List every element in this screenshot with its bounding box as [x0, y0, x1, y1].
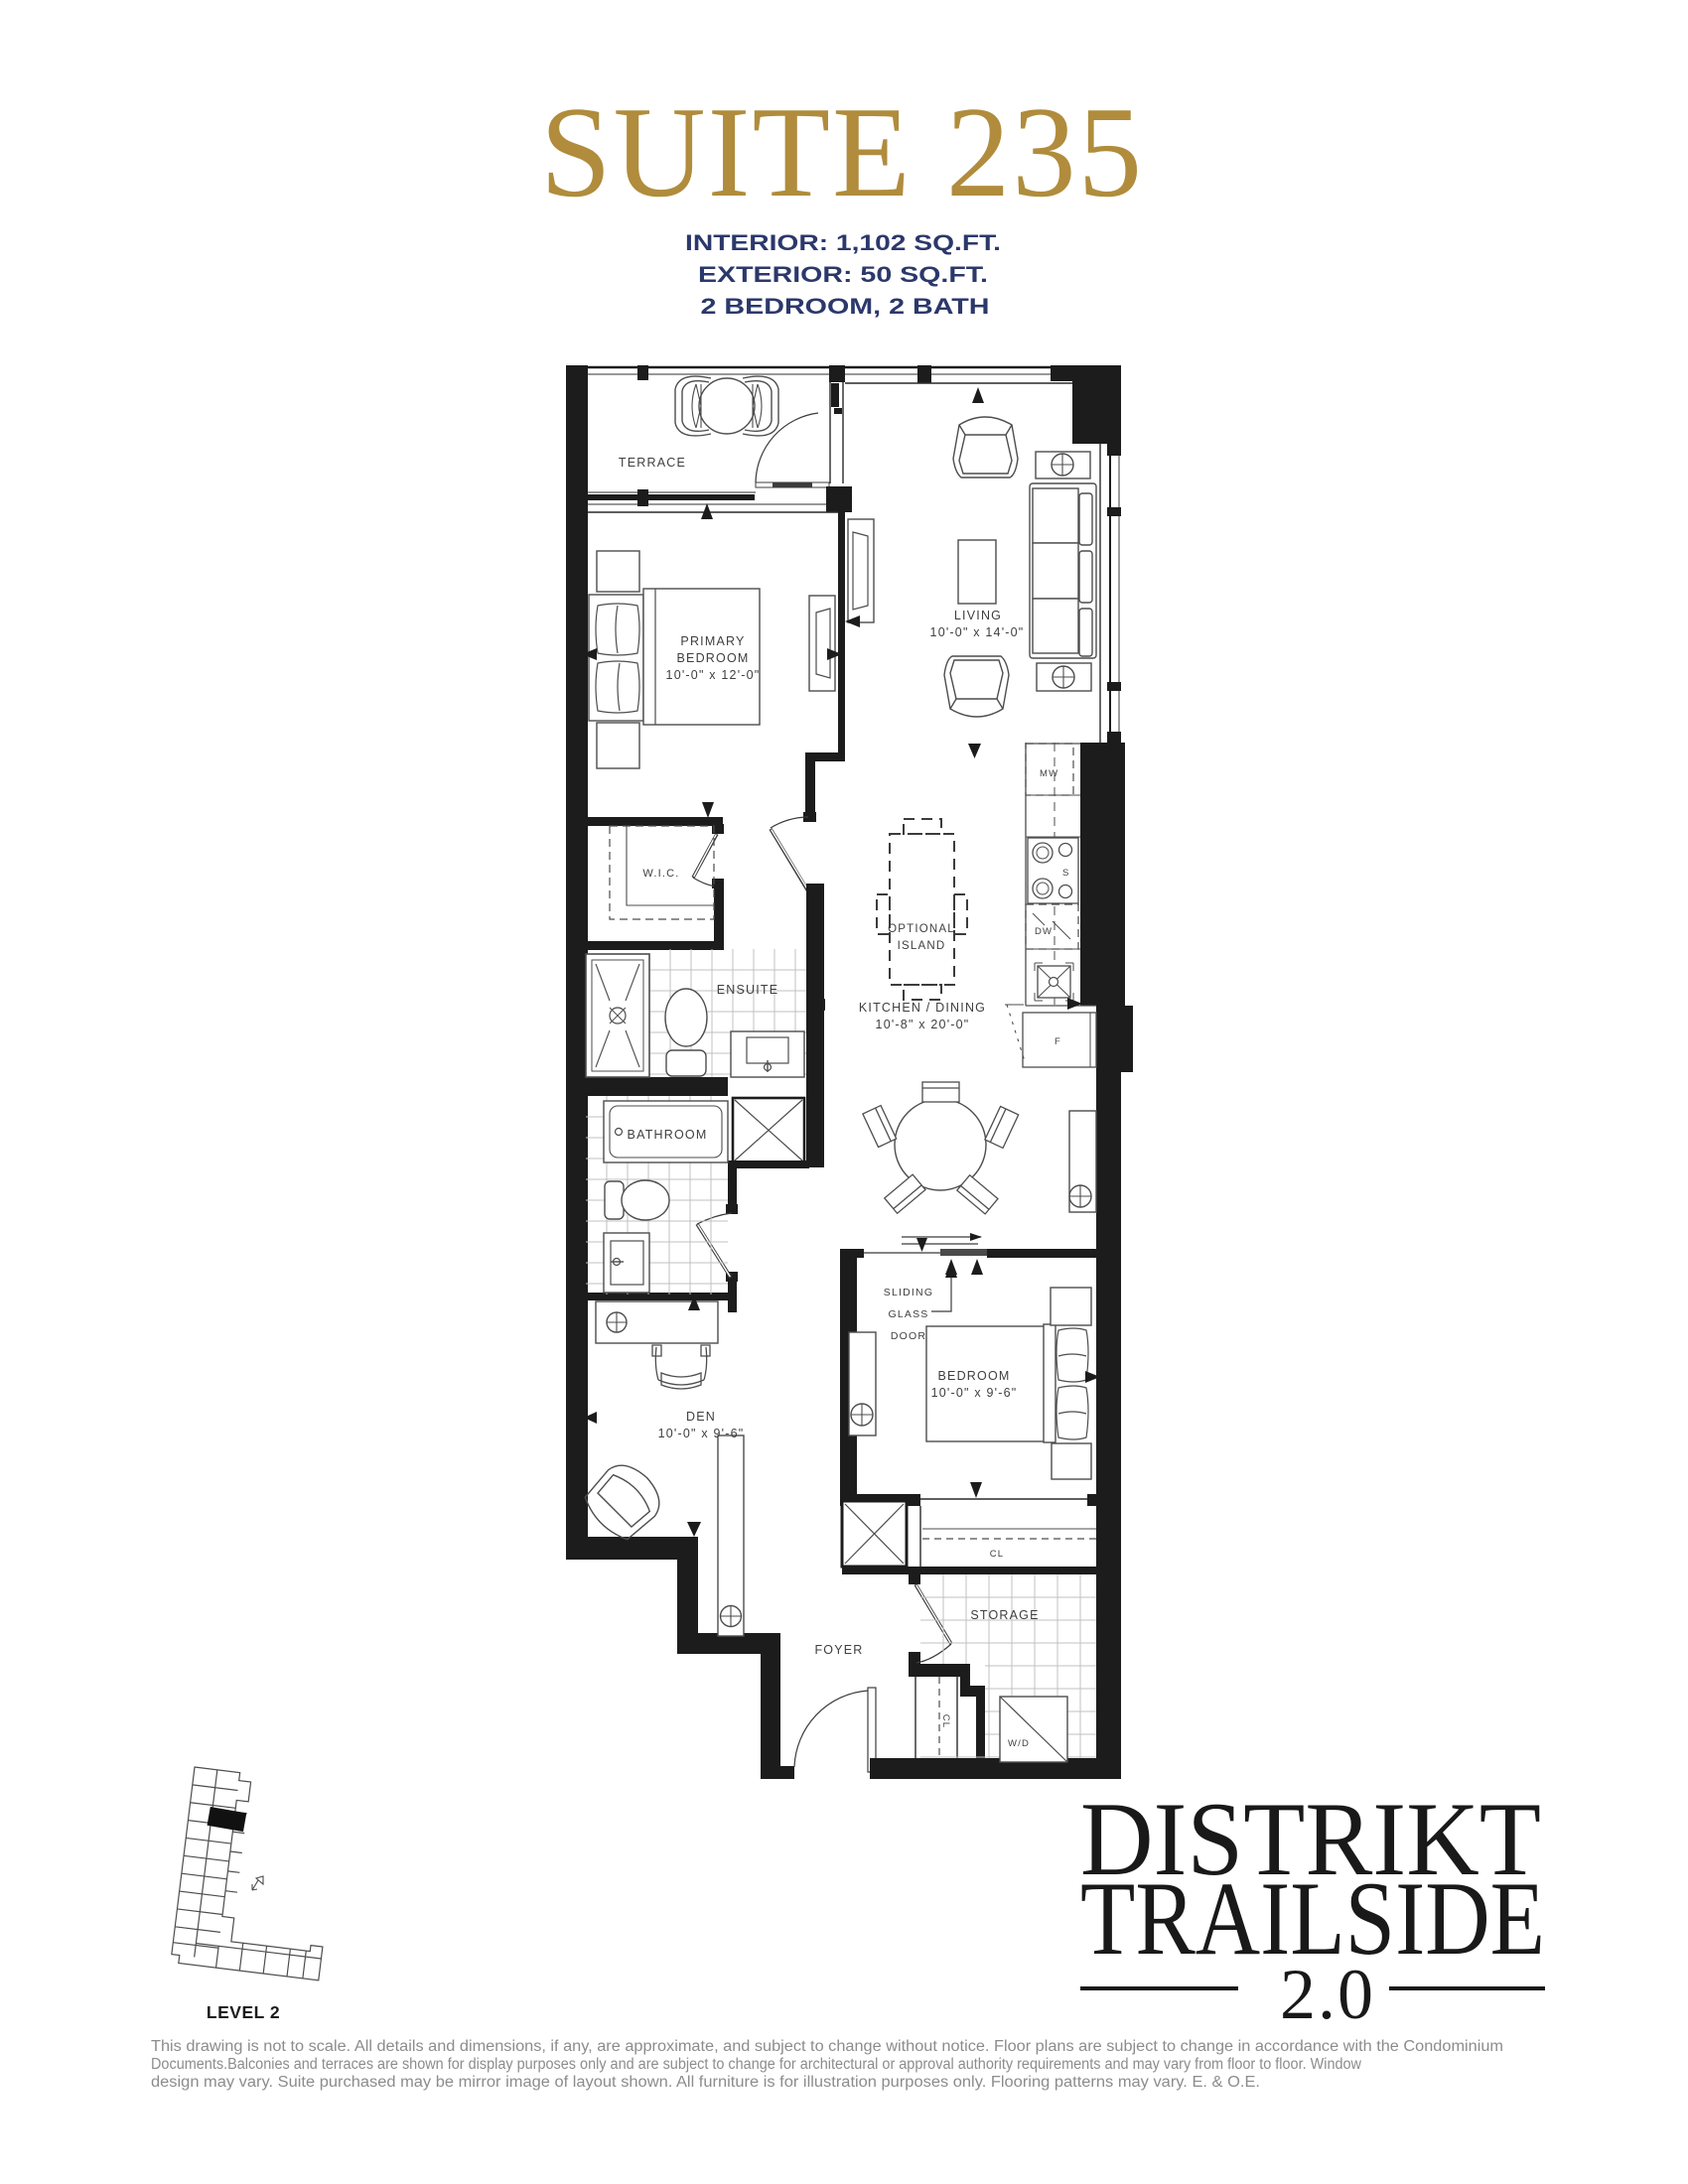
- svg-text:DW: DW: [1035, 926, 1053, 937]
- svg-text:CL: CL: [940, 1714, 951, 1729]
- svg-text:SUITE 235: SUITE 235: [540, 80, 1144, 224]
- svg-text:FOYER: FOYER: [814, 1643, 863, 1657]
- svg-text:10'-0" x 14'-0": 10'-0" x 14'-0": [930, 625, 1025, 639]
- svg-text:10'-8" x 20'-0": 10'-8" x 20'-0": [876, 1018, 970, 1031]
- svg-text:BATHROOM: BATHROOM: [628, 1128, 708, 1142]
- svg-text:W.I.C.: W.I.C.: [642, 868, 679, 880]
- svg-text:OPTIONAL: OPTIONAL: [888, 923, 955, 935]
- svg-text:GLASS: GLASS: [888, 1308, 928, 1320]
- svg-text:PRIMARY: PRIMARY: [680, 634, 745, 648]
- svg-text:S: S: [1062, 868, 1070, 879]
- svg-text:design may vary. Suite purchas: design may vary. Suite purchased may be …: [151, 2074, 1260, 2091]
- svg-text:SLIDING: SLIDING: [884, 1287, 933, 1298]
- svg-text:2 BEDROOM, 2 BATH: 2 BEDROOM, 2 BATH: [701, 294, 990, 319]
- svg-text:ISLAND: ISLAND: [898, 940, 946, 952]
- svg-text:STORAGE: STORAGE: [970, 1608, 1039, 1622]
- svg-text:BEDROOM: BEDROOM: [677, 651, 750, 665]
- svg-text:INTERIOR: 1,102 SQ.FT.: INTERIOR: 1,102 SQ.FT.: [685, 230, 1001, 255]
- svg-text:CL: CL: [990, 1549, 1005, 1560]
- svg-text:Documents.Balconies and terrac: Documents.Balconies and terraces are sho…: [151, 2056, 1362, 2073]
- svg-text:EXTERIOR: 50 SQ.FT.: EXTERIOR: 50 SQ.FT.: [698, 262, 988, 287]
- svg-text:DEN: DEN: [686, 1410, 716, 1424]
- svg-text:LEVEL 2: LEVEL 2: [207, 2002, 280, 2022]
- svg-text:10'-0" x 9'-6": 10'-0" x 9'-6": [658, 1427, 745, 1440]
- svg-text:BEDROOM: BEDROOM: [938, 1369, 1011, 1383]
- svg-text:LIVING: LIVING: [954, 609, 1002, 622]
- svg-text:KITCHEN / DINING: KITCHEN / DINING: [859, 1001, 986, 1015]
- svg-text:TERRACE: TERRACE: [619, 456, 686, 470]
- svg-text:This drawing is not to scale.: This drawing is not to scale. All detail…: [151, 2038, 1503, 2055]
- svg-text:10'-0" x 9'-6": 10'-0" x 9'-6": [931, 1386, 1018, 1400]
- svg-text:F: F: [1055, 1036, 1061, 1047]
- svg-text:2.0: 2.0: [1280, 1955, 1375, 2034]
- svg-text:W/D: W/D: [1008, 1738, 1030, 1749]
- svg-text:ENSUITE: ENSUITE: [717, 983, 779, 997]
- svg-text:MW: MW: [1040, 768, 1058, 779]
- svg-text:10'-0" x 12'-0": 10'-0" x 12'-0": [666, 668, 761, 682]
- svg-text:DOOR: DOOR: [891, 1330, 926, 1342]
